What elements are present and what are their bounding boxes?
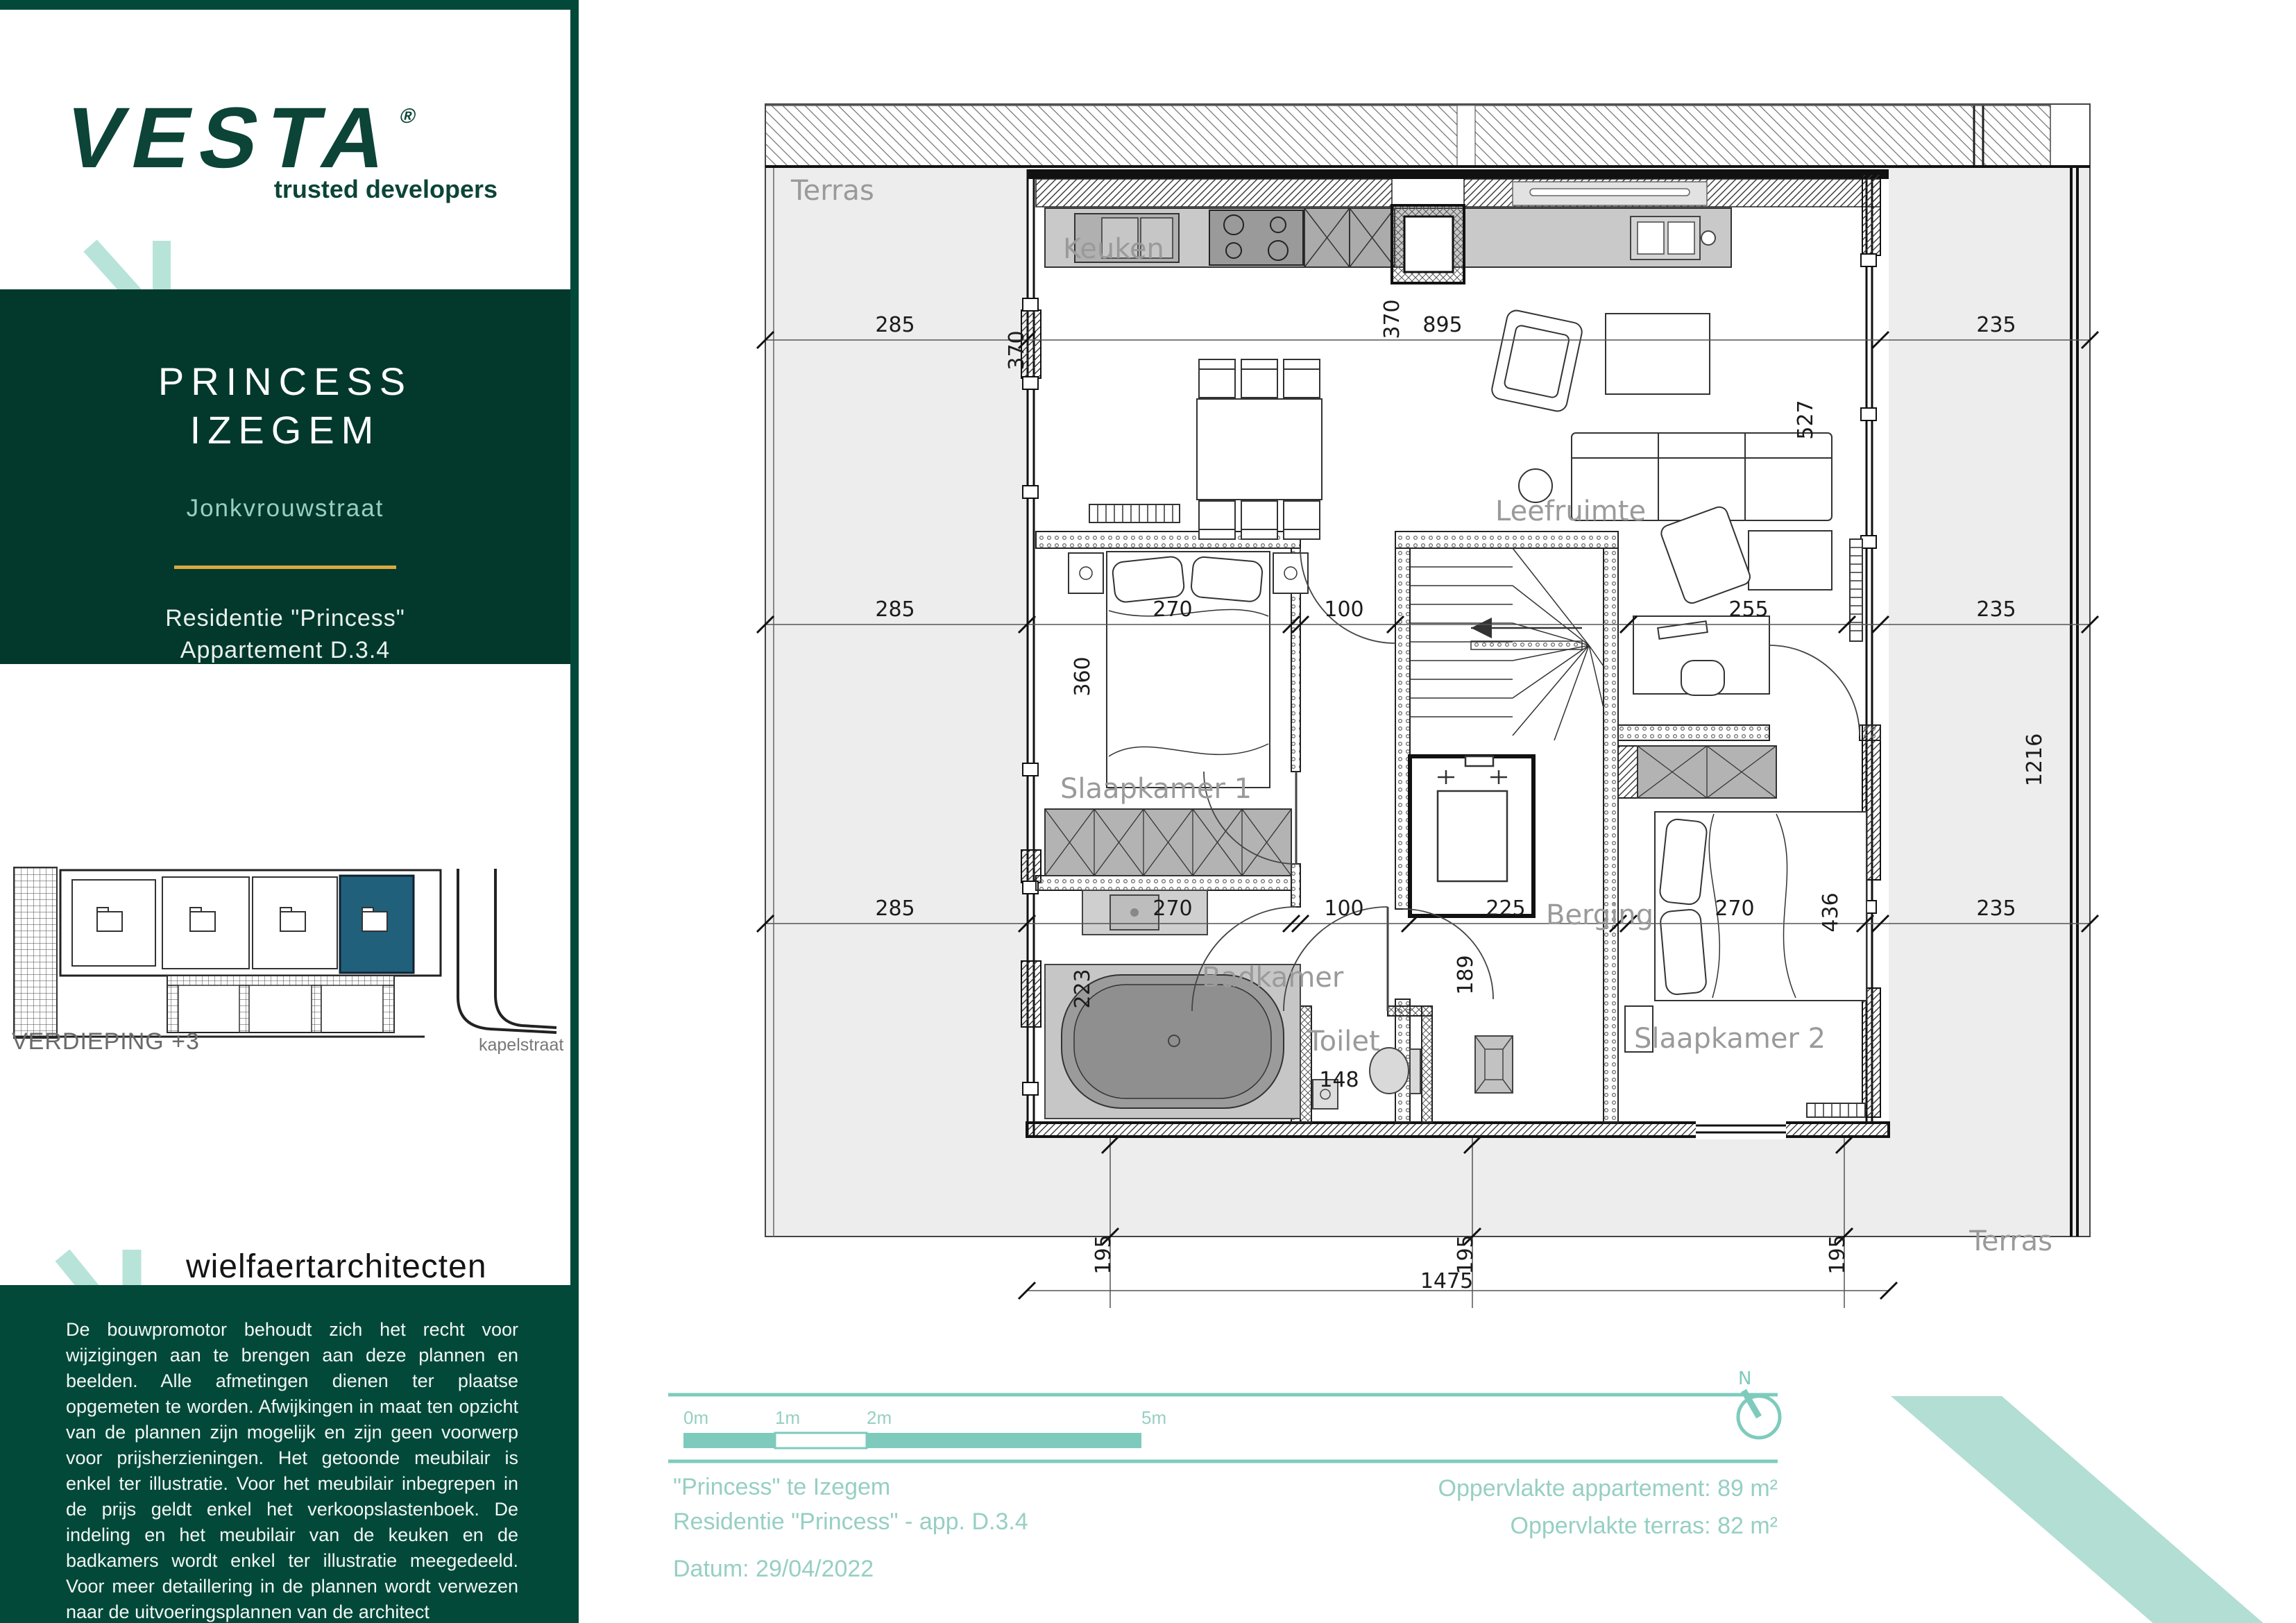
dimension-label: 285 (875, 313, 915, 337)
keyplan-floor-label: VERDIEPING +3 (12, 1028, 200, 1055)
dimension-label: 1216 (2023, 733, 2047, 786)
architect-name: wielfaertarchitecten (186, 1248, 487, 1286)
apartment-area: Oppervlakte appartement: 89 m² (1223, 1470, 1778, 1507)
keyplan-hatch-strip (14, 867, 57, 1038)
bedroom2-window (1696, 1120, 1786, 1139)
north-label: N (1738, 1368, 1751, 1389)
dimension-label: 148 (1319, 1068, 1359, 1092)
tv-sideboard (1606, 314, 1710, 394)
scale-label: 0m (683, 1407, 708, 1429)
dimension-label: 195 (1091, 1234, 1116, 1274)
plan-sheet: TerrasKeukenLeefruimteSlaapkamer 1Badkam… (0, 0, 2296, 1623)
room-label: Terras (1968, 1225, 2052, 1257)
room-label: Slaapkamer 2 (1634, 1023, 1826, 1055)
project-street: Jonkvrouwstraat (0, 495, 570, 522)
keyplan-street-label: kapelstraat (479, 1035, 563, 1055)
dimension-label: 100 (1324, 597, 1363, 622)
sidebar-border (570, 0, 579, 1623)
residence-name: Residentie "Princess" (0, 602, 570, 634)
terrace-area: Oppervlakte terras: 82 m² (1223, 1507, 1778, 1545)
scale-bar (683, 1433, 1141, 1448)
scale-label: 2m (867, 1407, 892, 1429)
apartment-number: Appartement D.3.4 (0, 634, 570, 666)
room-label: Terras (790, 175, 874, 207)
radiator-icon (1089, 504, 1180, 522)
room-label: Leefruimte (1495, 495, 1646, 527)
north-compass-icon: N (1738, 1368, 1780, 1438)
dimension-label: 235 (1976, 313, 2016, 337)
dimension-label: 223 (1071, 969, 1095, 1008)
radiator-icon (1850, 539, 1862, 641)
dimension-label: 225 (1486, 897, 1525, 921)
room-label: Berging (1546, 899, 1653, 931)
keyplan-street-line (458, 869, 556, 1033)
dining-set (1197, 359, 1322, 539)
washer-icon (1475, 1036, 1513, 1093)
dimension-label: 270 (1715, 897, 1754, 921)
room-label: Toilet (1307, 1026, 1380, 1057)
logo-tagline: trusted developers (0, 175, 498, 204)
dimension-label: 235 (1976, 897, 2016, 921)
ottoman (1749, 531, 1832, 590)
corner-ribbon (1891, 1396, 2296, 1623)
dimension-label: 285 (875, 597, 915, 622)
footer-residence-line: Residentie "Princess" - app. D.3.4 (673, 1504, 1028, 1539)
sidebar: VESTA® trusted developers PRINCESS IZEGE… (0, 0, 579, 1623)
dimension-label: 527 (1794, 400, 1818, 439)
dimension-label: 189 (1454, 955, 1478, 994)
dimension-label: 895 (1422, 313, 1462, 337)
scale-label: 5m (1141, 1407, 1166, 1429)
dimension-label: 195 (1826, 1234, 1850, 1274)
stair-core (1410, 548, 1604, 916)
footer-project-block: "Princess" te Izegem Residentie "Princes… (673, 1470, 1028, 1586)
sidebar-top-strip (0, 0, 570, 10)
elevator-shaft (1410, 756, 1533, 916)
desk-chair (1681, 661, 1724, 695)
room-label: Slaapkamer 1 (1060, 773, 1252, 805)
storage-fixtures (1475, 1036, 1513, 1093)
gold-divider (174, 566, 396, 569)
footer-date: Datum: 29/04/2022 (673, 1552, 1028, 1586)
project-title-line2: IZEGEM (0, 406, 570, 454)
dimension-label: 370 (1380, 299, 1404, 339)
project-panel: PRINCESS IZEGEM Jonkvrouwstraat Resident… (0, 289, 570, 664)
roof-hatch-band (765, 105, 2050, 167)
dimension-label: 1475 (1420, 1269, 1473, 1293)
dimension-label: 285 (875, 897, 915, 921)
stove-icon (1209, 210, 1303, 265)
key-plan (8, 862, 570, 1044)
stair-direction-arrow (1471, 618, 1492, 638)
dimension-label: 370 (1005, 330, 1029, 370)
dimension-label: 360 (1071, 656, 1095, 696)
vesta-logo: VESTA® (56, 89, 422, 187)
room-label: Keuken (1063, 233, 1164, 265)
footer-project-name: "Princess" te Izegem (673, 1470, 1028, 1504)
dimension-label: 255 (1728, 597, 1768, 622)
disclaimer-panel: De bouwpromotor behoudt zich het recht v… (0, 1285, 570, 1623)
dimension-label: 270 (1153, 897, 1192, 921)
dimension-label: 235 (1976, 597, 2016, 622)
project-title-line1: PRINCESS (0, 357, 570, 406)
disclaimer-text: De bouwpromotor behoudt zich het recht v… (66, 1317, 518, 1623)
dimension-label: 270 (1153, 597, 1192, 622)
scale-label: 1m (775, 1407, 800, 1429)
room-label: Badkamer (1202, 962, 1344, 994)
dimension-label: 436 (1819, 892, 1843, 932)
footer-area-block: Oppervlakte appartement: 89 m² Oppervlak… (1223, 1470, 1778, 1545)
dimension-label: 100 (1324, 897, 1363, 921)
logo-wordmark: VESTA (56, 90, 406, 186)
